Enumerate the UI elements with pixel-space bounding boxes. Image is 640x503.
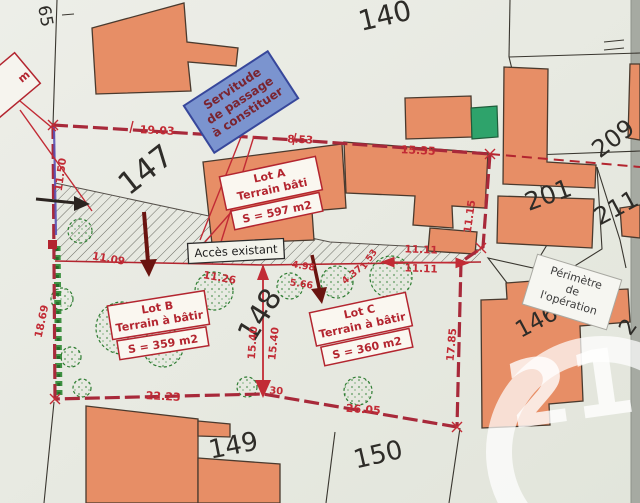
building-parcel149	[86, 406, 198, 503]
green-annex	[471, 106, 498, 139]
measurement-top-right: 15.35	[400, 143, 435, 158]
measurement-bottom-left: 22.23	[145, 389, 180, 404]
tree	[68, 219, 92, 243]
measurement-bottom-fragment: 30	[269, 386, 284, 398]
tree	[61, 347, 81, 367]
measurement-bottom-right: 26.05	[345, 402, 381, 417]
plan-canvas: 65 140 147 148 149 150 201 209 211 146 2…	[0, 0, 640, 503]
tree	[73, 379, 91, 397]
building-top-middle	[405, 96, 472, 139]
cadastral-plan-photo: 65 140 147 148 149 150 201 209 211 146 2…	[0, 0, 640, 503]
parcel-number-65: 65	[33, 4, 56, 29]
building-parcel149-east	[198, 458, 280, 503]
century21-number: 21	[500, 327, 640, 451]
corner-marker	[48, 240, 57, 249]
measurement-top-mid: 8.53	[287, 133, 314, 146]
measurement-lotc-top-lower: 11.11	[404, 262, 438, 275]
tree	[344, 377, 372, 405]
measurement-divider-left: 15.40	[246, 326, 260, 360]
measurement-lotc-top-upper: 11.11	[404, 243, 438, 256]
acces-existant-label: Accès existant	[188, 239, 285, 264]
measurement-top-left: 19.03	[139, 123, 174, 138]
